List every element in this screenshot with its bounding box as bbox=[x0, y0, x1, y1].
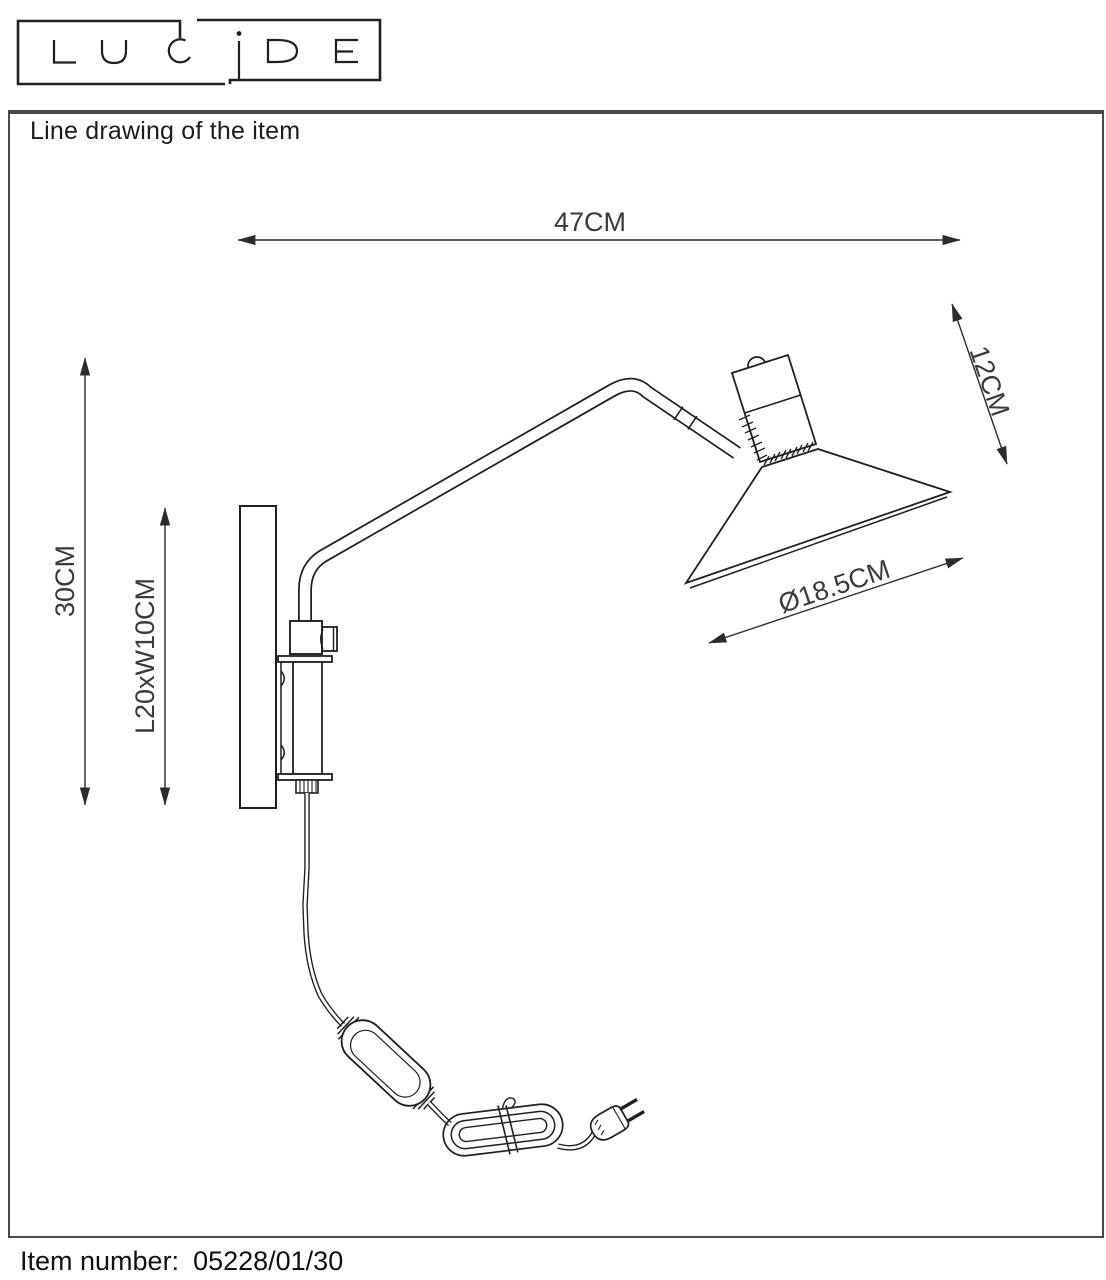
lamp-housing bbox=[732, 355, 816, 462]
dim-label-head-height: 12CM bbox=[964, 342, 1016, 420]
dimension-total-height: 30CM bbox=[50, 358, 85, 805]
arm-tube bbox=[305, 385, 737, 624]
flange-top bbox=[278, 656, 332, 662]
strain-relief bbox=[296, 780, 318, 793]
cord-coil bbox=[440, 1092, 566, 1162]
item-number-row: Item number:05228/01/30 bbox=[20, 1246, 343, 1277]
power-plug bbox=[586, 1094, 647, 1144]
spec-sheet-page: { "logo": { "brand": "LUCIDE" }, "header… bbox=[0, 0, 1106, 1280]
dim-label-arm-reach: 47CM bbox=[554, 207, 626, 237]
flange-bottom bbox=[278, 774, 332, 780]
inline-switch bbox=[329, 1007, 444, 1118]
dim-label-shade-diameter: Ø18.5CM bbox=[775, 554, 894, 619]
power-cord bbox=[305, 793, 343, 1025]
wall-lamp-figure bbox=[240, 355, 950, 1162]
cord-link bbox=[429, 1103, 450, 1124]
line-drawing: 47CM 12CM 30CM L20xW10CM Ø18.5CM bbox=[0, 0, 1106, 1280]
dimension-head-height: 12CM bbox=[952, 304, 1015, 464]
dim-label-backplate: L20xW10CM bbox=[130, 578, 160, 734]
shade-cone bbox=[686, 449, 950, 583]
mounting-column bbox=[293, 662, 322, 774]
adjustment-knob bbox=[321, 627, 337, 651]
cord-to-plug bbox=[558, 1133, 594, 1148]
dim-label-total-height: 30CM bbox=[50, 545, 80, 617]
junction-box bbox=[290, 621, 322, 654]
dimension-backplate: L20xW10CM bbox=[130, 508, 165, 805]
item-number-value: 05228/01/30 bbox=[193, 1246, 343, 1276]
wall-plate bbox=[240, 506, 276, 808]
bracket-edge bbox=[281, 662, 284, 774]
dimension-arm-reach: 47CM bbox=[238, 207, 960, 240]
item-number-label: Item number: bbox=[20, 1246, 179, 1276]
coil-tie bbox=[498, 1104, 518, 1155]
